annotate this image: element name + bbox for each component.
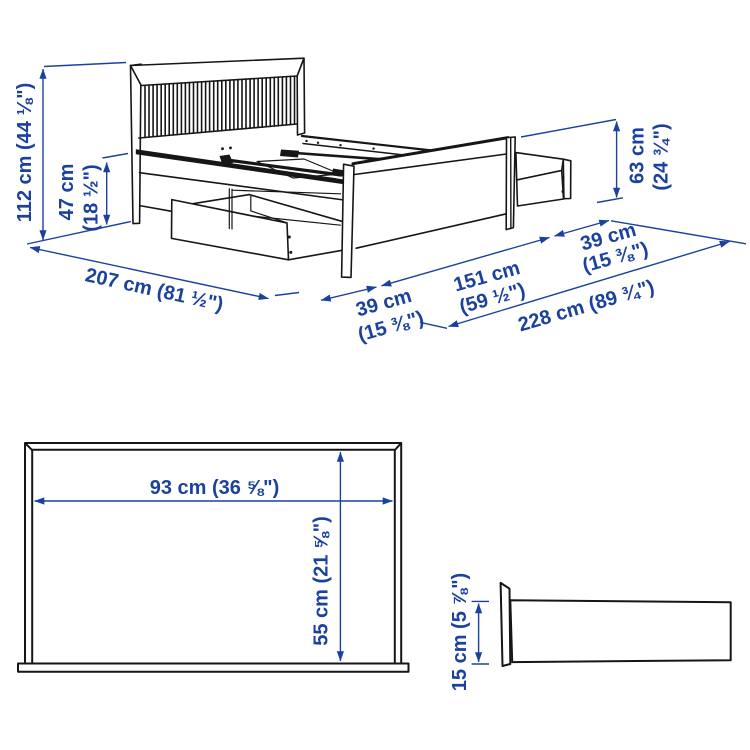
- svg-text:15 cm (5 ⅞"): 15 cm (5 ⅞"): [449, 573, 471, 691]
- svg-text:(24 ¾"): (24 ¾"): [651, 123, 673, 190]
- svg-text:(18 ½"): (18 ½"): [81, 164, 103, 231]
- svg-text:112 cm (44 ⅛"): 112 cm (44 ⅛"): [14, 83, 36, 223]
- svg-text:47 cm: 47 cm: [56, 164, 78, 221]
- svg-text:93 cm (36 ⅝"): 93 cm (36 ⅝"): [150, 477, 280, 499]
- svg-text:63 cm: 63 cm: [627, 127, 649, 184]
- svg-text:55 cm (21 ⅝"): 55 cm (21 ⅝"): [311, 516, 333, 646]
